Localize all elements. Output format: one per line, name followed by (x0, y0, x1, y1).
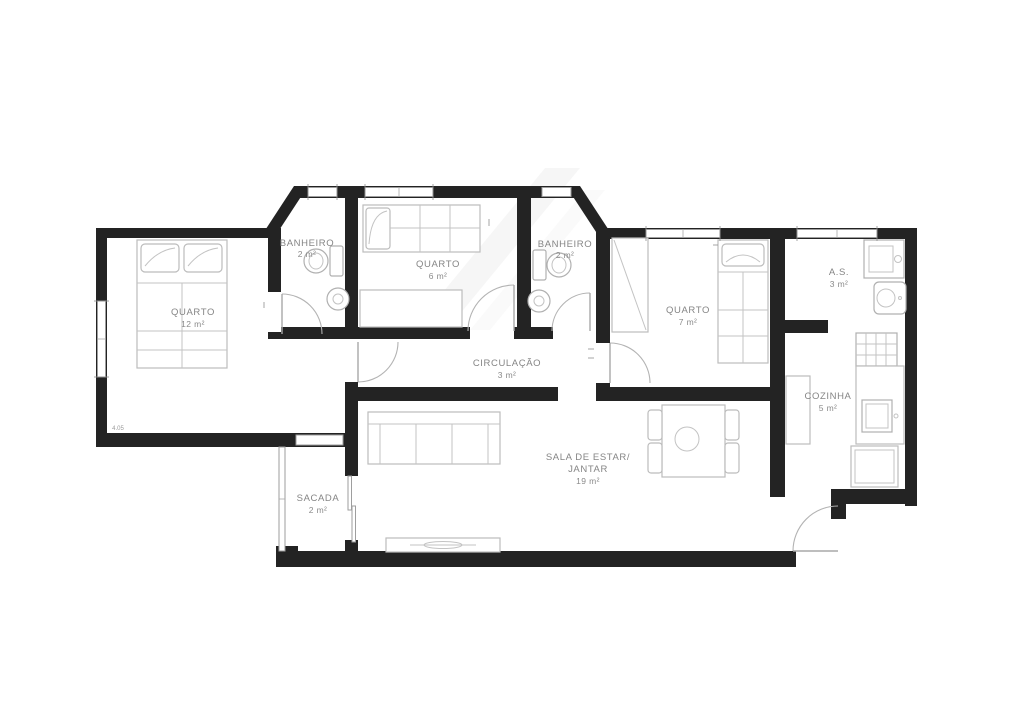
label-cozinha: COZINHA 5 m² (805, 391, 852, 413)
double-bed (137, 240, 227, 368)
svg-text:12 m²: 12 m² (181, 319, 205, 329)
wardrobe-quarto7 (612, 238, 648, 332)
dresser-quarto6 (360, 290, 462, 327)
stove (856, 333, 897, 366)
svg-text:CIRCULAÇÃO: CIRCULAÇÃO (473, 358, 541, 369)
sink-banheiro2 (528, 290, 550, 312)
sink-banheiro1 (327, 288, 349, 310)
dining-table (648, 405, 739, 477)
window-banheiro1 (308, 188, 337, 197)
svg-text:COZINHA: COZINHA (805, 391, 852, 402)
svg-text:2 m²: 2 m² (298, 249, 317, 259)
sacada-sliding-door (348, 476, 356, 542)
svg-text:2 m²: 2 m² (309, 505, 328, 515)
svg-text:5 m²: 5 m² (819, 403, 838, 413)
label-quarto-7: QUARTO 7 m² (666, 305, 710, 327)
label-quarto-6: QUARTO 6 m² (416, 259, 460, 281)
sofa (368, 412, 500, 464)
svg-text:2 m²: 2 m² (556, 250, 575, 260)
svg-text:SALA DE ESTAR/: SALA DE ESTAR/ (546, 452, 630, 463)
single-bed-quarto7 (718, 240, 768, 363)
svg-text:7 m²: 7 m² (679, 317, 698, 327)
svg-text:6 m²: 6 m² (429, 271, 448, 281)
svg-text:QUARTO: QUARTO (666, 305, 710, 316)
svg-text:QUARTO: QUARTO (416, 259, 460, 270)
window-banheiro2 (542, 188, 571, 197)
door-banheiro2 (552, 293, 590, 331)
door-quarto12 (358, 342, 398, 382)
refrigerator (851, 446, 898, 487)
dimension-label: 4.05 (112, 426, 124, 432)
svg-text:19 m²: 19 m² (576, 476, 600, 486)
washing-machine (864, 240, 904, 278)
floor-plan-drawing: QUARTO 12 m² BANHEIRO 2 m² QUARTO 6 m² B… (0, 0, 1024, 724)
label-area-servico: A.S. 3 m² (829, 267, 849, 289)
window-quarto12-sacada (296, 435, 343, 445)
laundry-tank (874, 282, 906, 314)
svg-text:JANTAR: JANTAR (568, 464, 608, 475)
label-sacada: SACADA 2 m² (297, 493, 340, 515)
svg-text:QUARTO: QUARTO (171, 307, 215, 318)
kitchen-sink (862, 400, 898, 432)
svg-text:3 m²: 3 m² (830, 279, 849, 289)
svg-text:SACADA: SACADA (297, 493, 340, 504)
svg-text:BANHEIRO: BANHEIRO (280, 238, 334, 249)
label-sala: SALA DE ESTAR/ JANTAR 19 m² (546, 452, 630, 486)
svg-text:BANHEIRO: BANHEIRO (538, 239, 592, 250)
tv-rack (386, 538, 500, 552)
single-bed-quarto6 (363, 205, 480, 252)
floor-plan-page: QUARTO 12 m² BANHEIRO 2 m² QUARTO 6 m² B… (0, 0, 1024, 724)
svg-text:A.S.: A.S. (829, 267, 849, 278)
label-circulacao: CIRCULAÇÃO 3 m² (473, 358, 541, 380)
svg-text:3 m²: 3 m² (498, 370, 517, 380)
door-quarto7 (610, 343, 650, 383)
